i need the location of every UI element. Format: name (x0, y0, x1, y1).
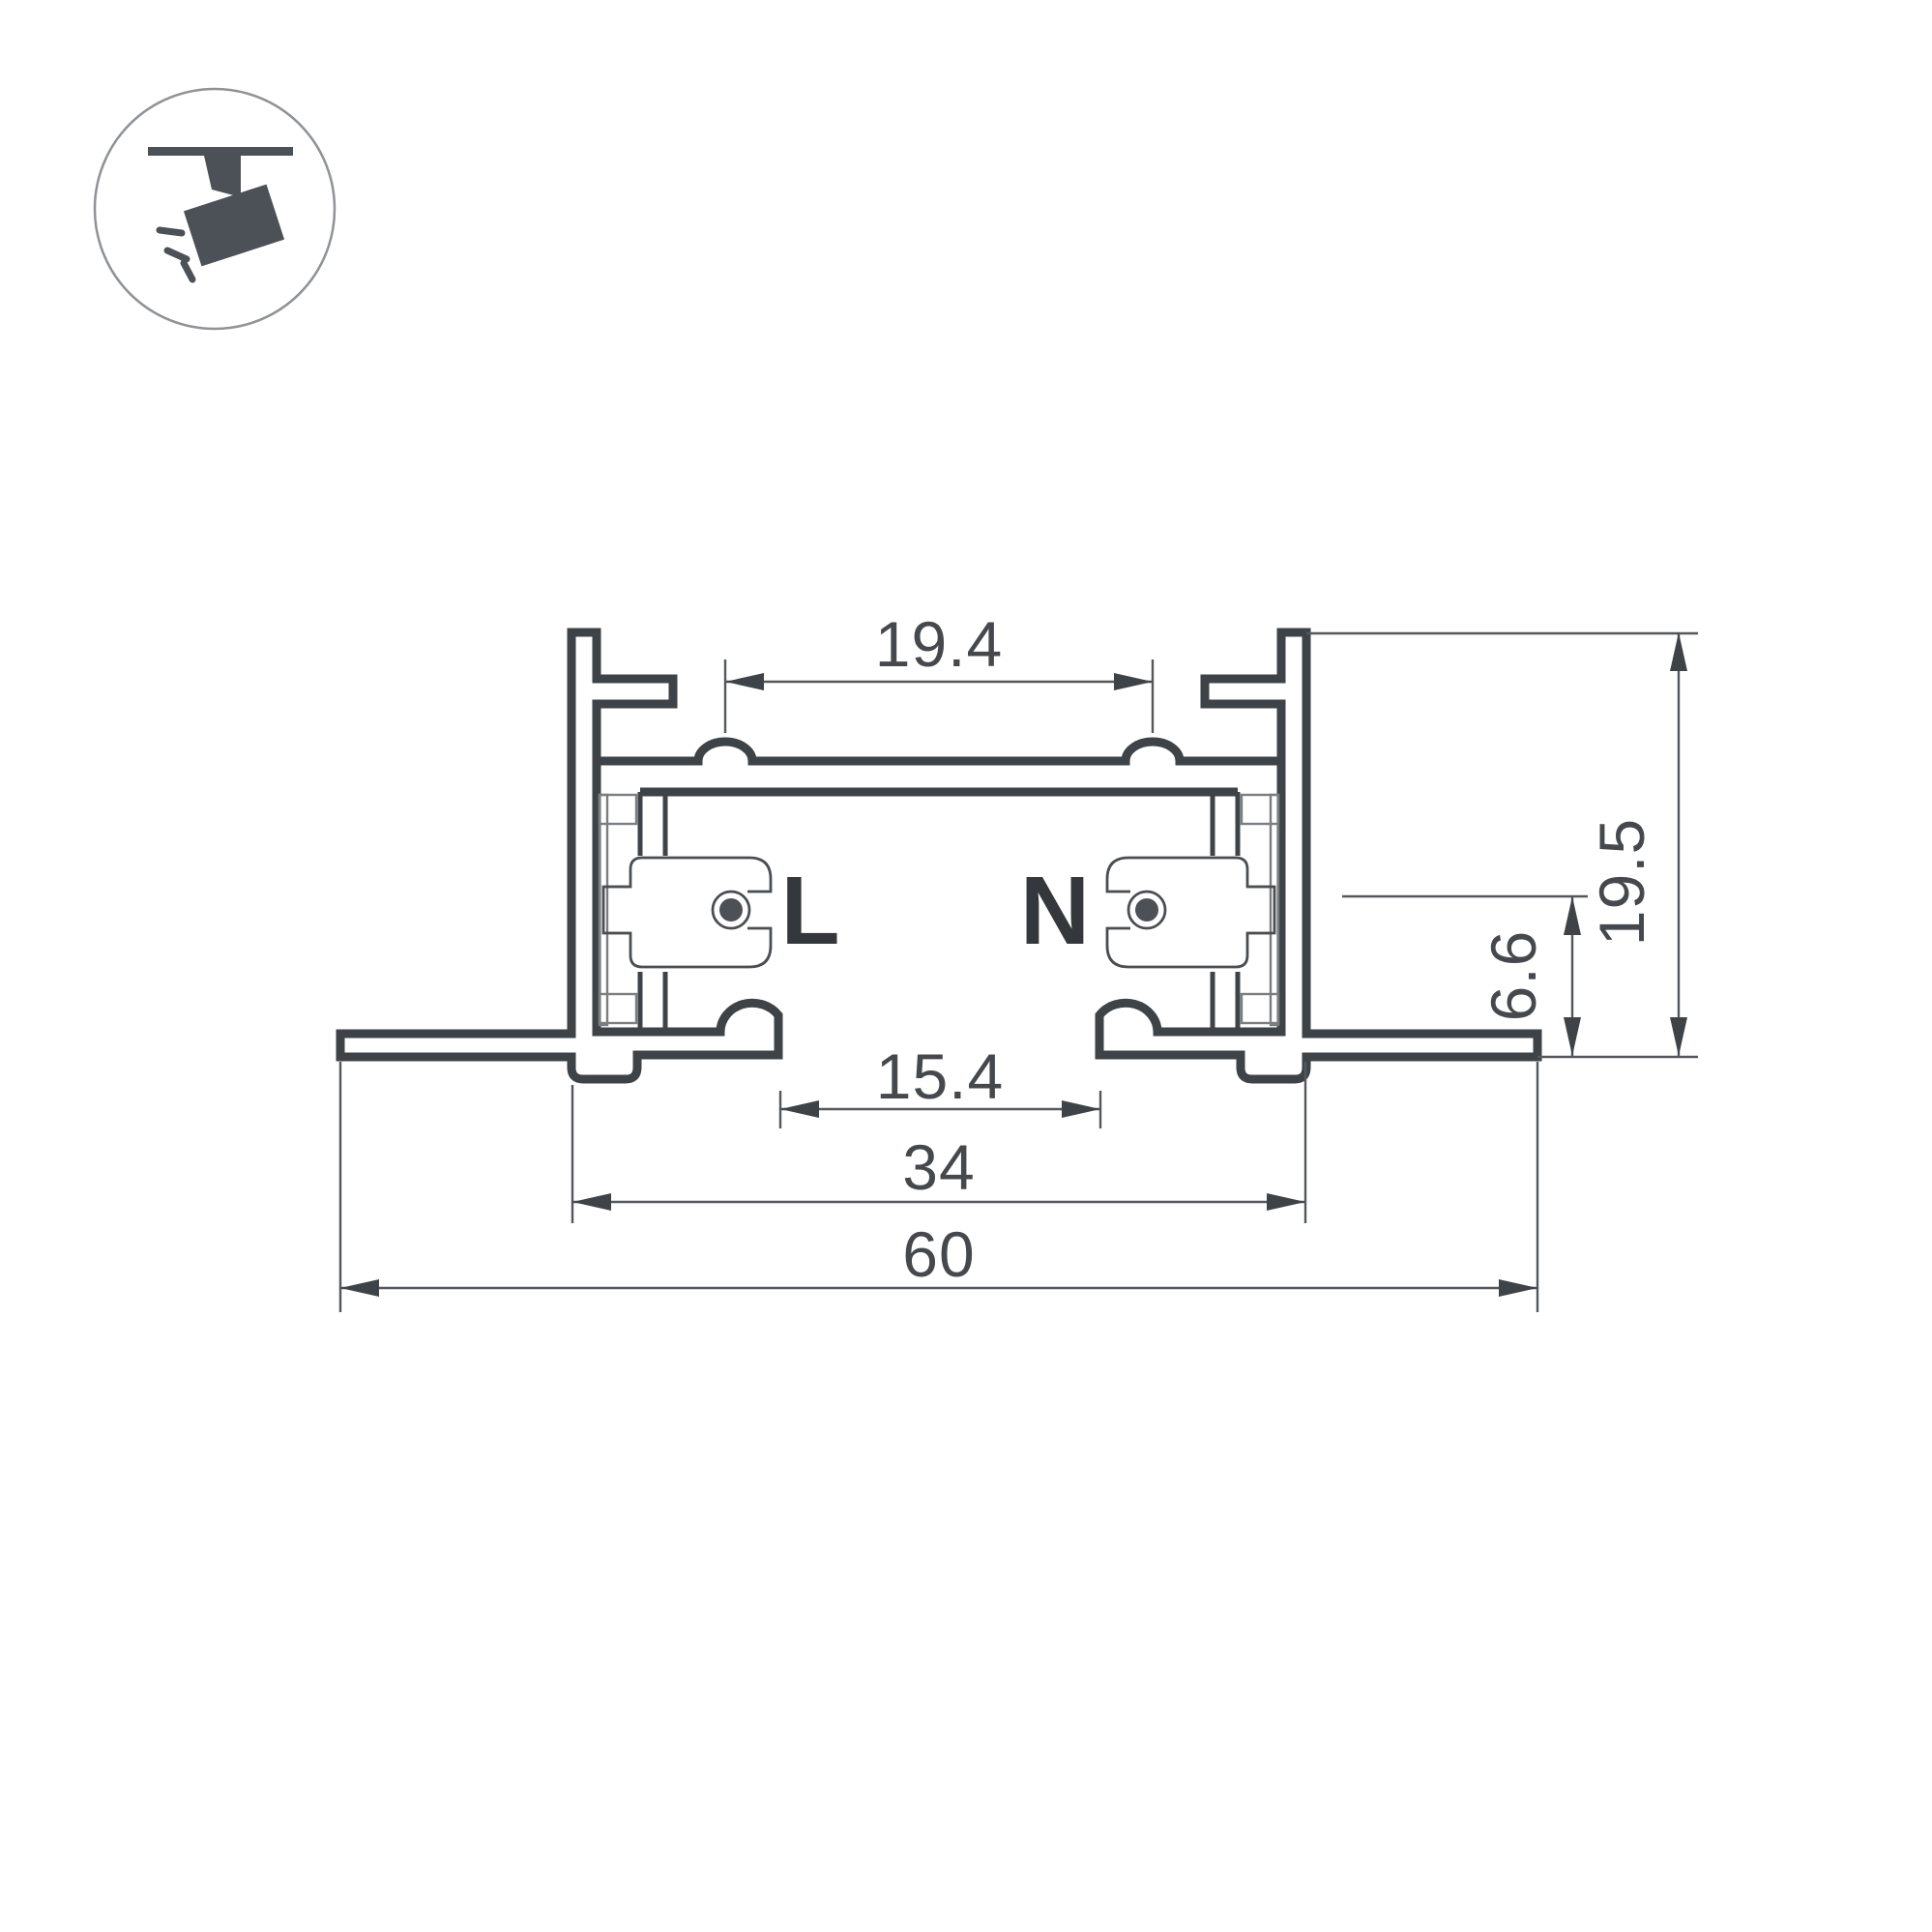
dim-value-15-4: 15.4 (876, 1040, 1004, 1112)
profile-left-body (340, 632, 778, 1079)
profile-right-body (1099, 632, 1537, 1079)
live-label: L (780, 857, 839, 965)
neutral-conductor-dot (1135, 898, 1158, 922)
profile-cross-section: L N (340, 632, 1537, 1079)
neutral-label: N (1020, 857, 1090, 965)
track-spotlight-icon (95, 89, 335, 329)
dim-value-34: 34 (902, 1131, 975, 1203)
live-conductor-dot (719, 898, 743, 922)
technical-drawing-page: L N 19.4 15.4 34 60 (0, 0, 1932, 1932)
insulator-liners (600, 795, 1278, 1025)
dim-value-19-4: 19.4 (875, 608, 1003, 680)
dim-value-19-5: 19.5 (1586, 818, 1657, 946)
icon-track-bar (148, 147, 293, 156)
profile-drawing-canvas: L N 19.4 15.4 34 60 (0, 0, 1932, 1932)
neutral-conductor-pocket (1107, 858, 1274, 967)
dimension-top-opening-width: 19.4 (725, 608, 1153, 733)
dim-value-60: 60 (902, 1218, 975, 1290)
dimension-bottom-opening-width: 15.4 (780, 1040, 1100, 1128)
profile-top-plate (597, 742, 1281, 761)
live-conductor-pocket (603, 858, 771, 967)
dim-value-6-6: 6.6 (1478, 930, 1549, 1022)
